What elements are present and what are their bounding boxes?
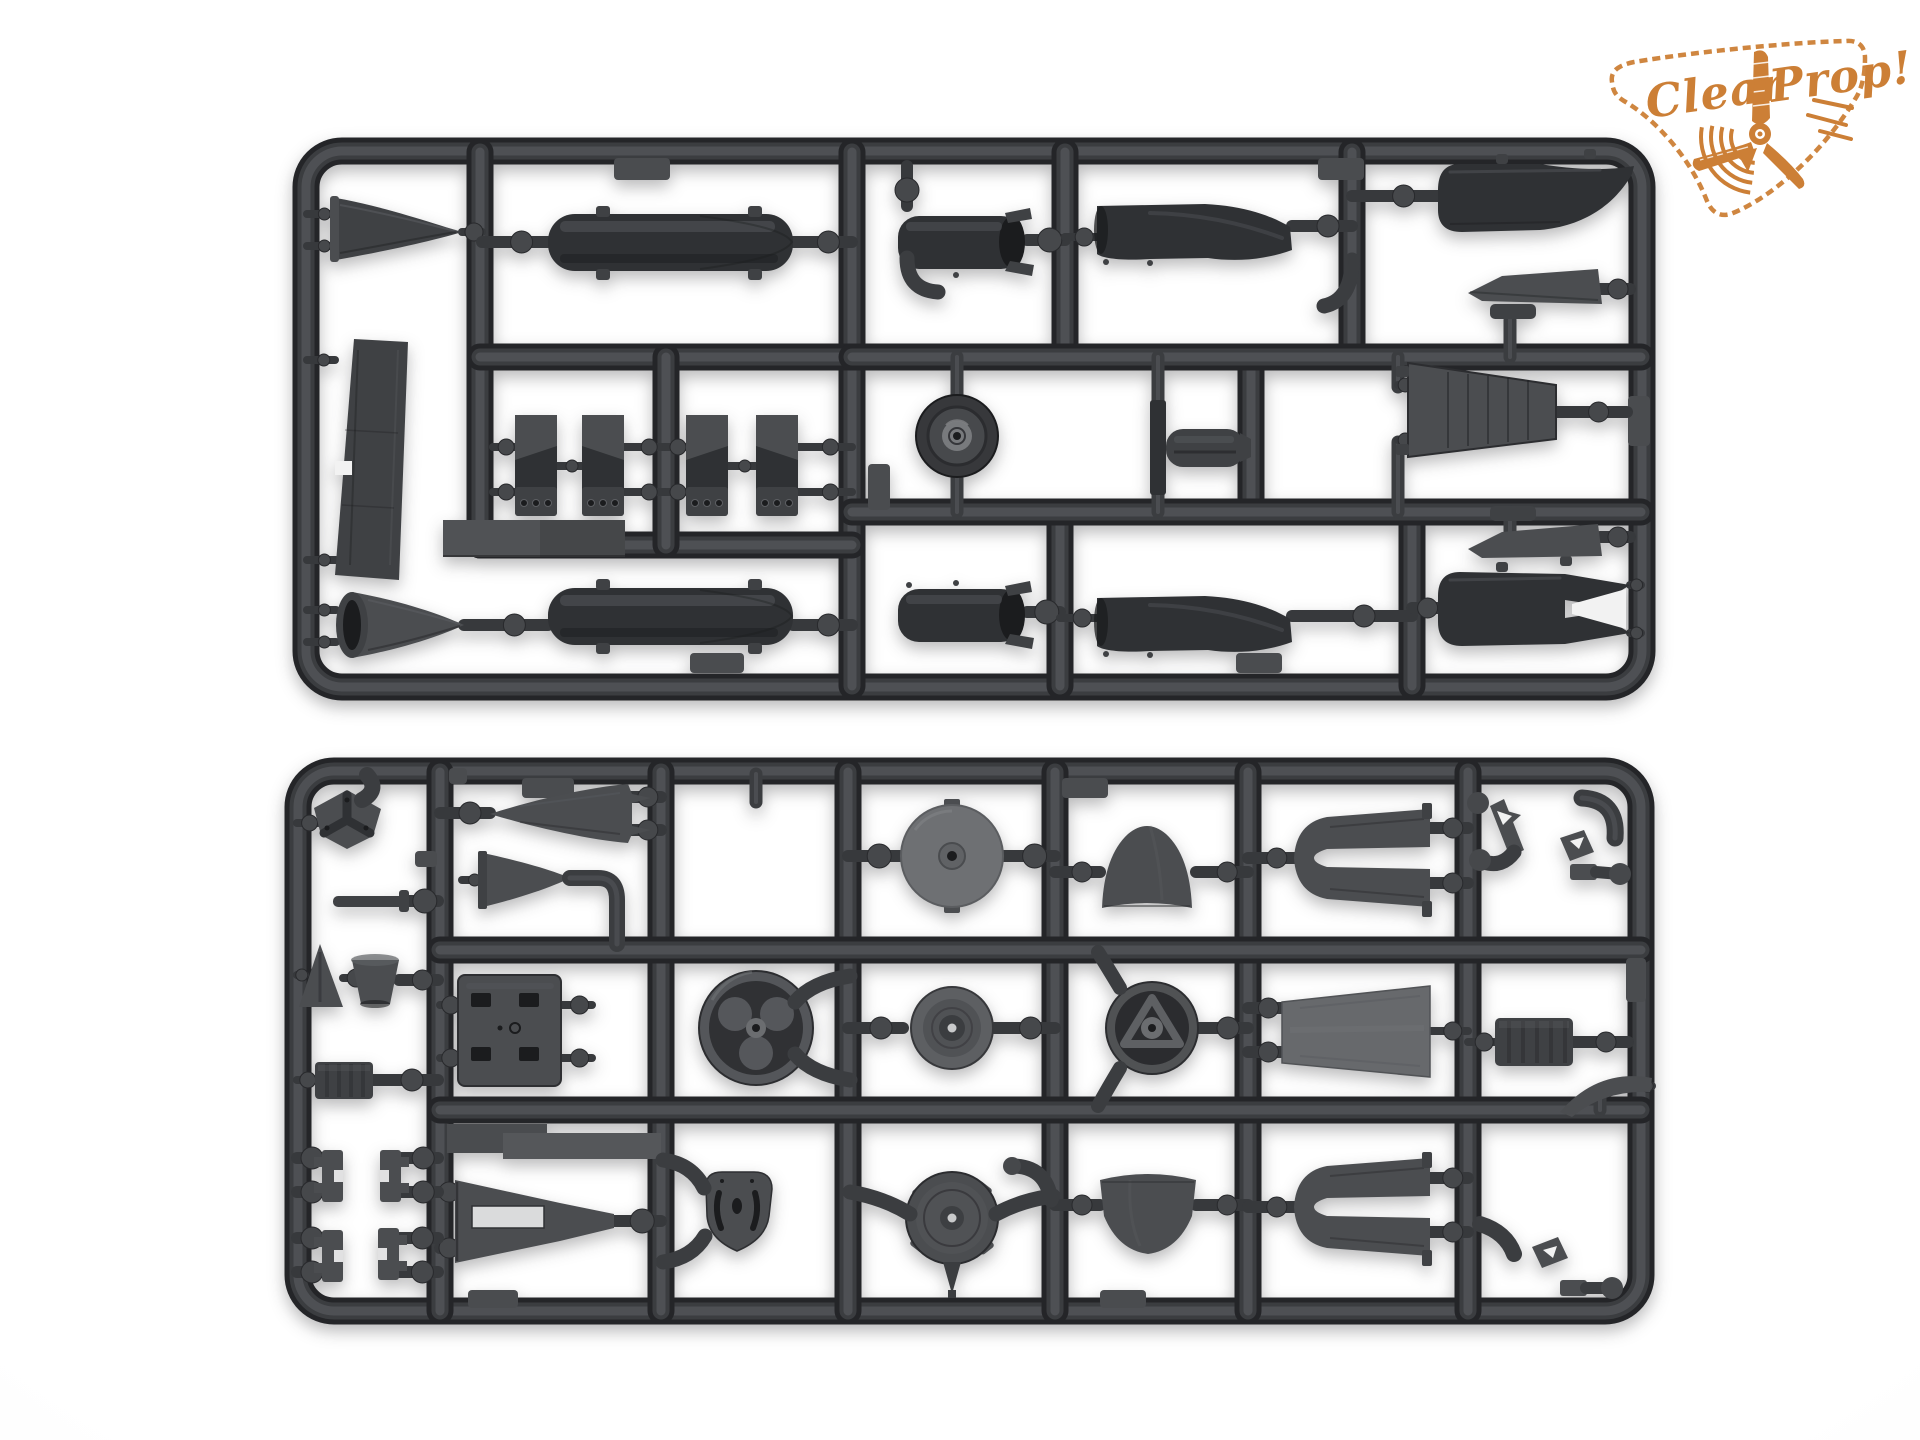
part-spinner-dome-down [1100,1174,1196,1254]
part-float-tube-lower [548,579,793,654]
part-equipment-plate [458,975,561,1086]
part-float-tube-upper [548,206,793,280]
part-nacelle-duct-lower [1094,596,1292,658]
photo-canvas: ClearProp! [0,0,1920,1440]
part-gate-tabs [447,1124,661,1159]
part-nose-cone-lower [336,592,464,658]
clear-prop-logo: ClearProp! [1612,40,1916,215]
part-prop-backplate [850,1172,1053,1298]
sprue-bottom [296,768,1653,1311]
part-fairing-cone-small [478,851,617,944]
part-venturi-cup [351,954,399,1008]
part-elbow-upper-right [1560,798,1631,885]
part-wing-panel [1282,986,1430,1077]
part-nacelle-intake-upper [898,208,1034,278]
part-access-hatch [1396,363,1556,457]
part-radiator-block-1 [515,415,557,516]
part-radiator-block-2 [582,415,624,516]
part-strut-lower-right [1480,1224,1623,1299]
part-nacelle-duct-upper [1094,204,1292,266]
part-tail-cone-upper [330,196,462,262]
sprue-top [306,149,1650,687]
part-spinner-backplate [911,987,993,1069]
part-ventral-fin [455,1180,614,1263]
part-actuator-tpart [1150,400,1251,495]
part-fairing-shield [663,1160,772,1262]
part-float-split-tail [1438,556,1630,646]
sprue-photo: ClearProp! [0,0,1920,1440]
part-rudder-fin [335,339,408,580]
part-spinner-dome-up [1102,826,1192,908]
part-rib-block-2 [1495,1018,1573,1066]
part-engine-fork-upper [1294,803,1432,917]
part-cowl-front-ring [699,971,850,1085]
part-rib-connector [315,1062,373,1099]
part-engine-fork-lower [1294,1152,1432,1266]
part-fairing-cone-large [490,784,651,843]
part-main-wheel [916,395,998,477]
part-blast-tab [443,520,625,557]
part-cowl-rear-cup [1098,952,1198,1106]
part-radiator-block-4 [756,415,798,516]
part-radiator-block-3 [686,415,728,516]
part-nacelle-intake-lower [898,580,1034,649]
logo-word-prop: Prop! [1764,40,1916,113]
part-skid-blade-upper [1468,269,1602,319]
part-barrel-rod [333,890,409,912]
part-engine-disc [901,799,1003,913]
